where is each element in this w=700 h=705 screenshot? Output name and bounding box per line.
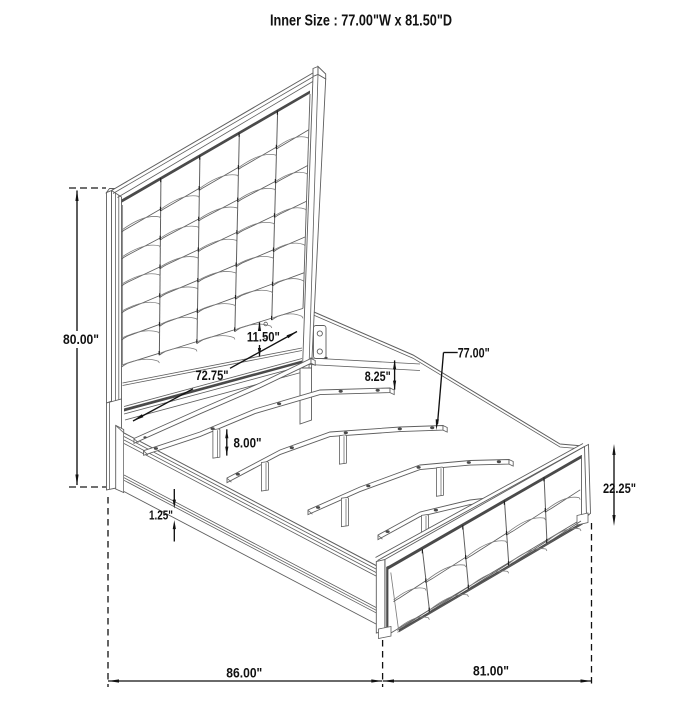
svg-text:11.50": 11.50" (247, 330, 280, 345)
svg-text:1.25": 1.25" (149, 508, 173, 523)
svg-text:86.00": 86.00" (226, 666, 262, 681)
svg-text:77.00": 77.00" (458, 345, 490, 361)
svg-text:8.25": 8.25" (365, 369, 391, 384)
svg-text:22.25": 22.25" (603, 480, 636, 496)
svg-text:81.00": 81.00" (473, 664, 509, 679)
svg-text:8.00": 8.00" (234, 434, 262, 450)
svg-text:72.75": 72.75" (196, 367, 229, 383)
svg-text:80.00": 80.00" (63, 331, 99, 347)
svg-text:Inner Size : 77.00"W x 81.50"D: Inner Size : 77.00"W x 81.50"D (270, 13, 452, 30)
